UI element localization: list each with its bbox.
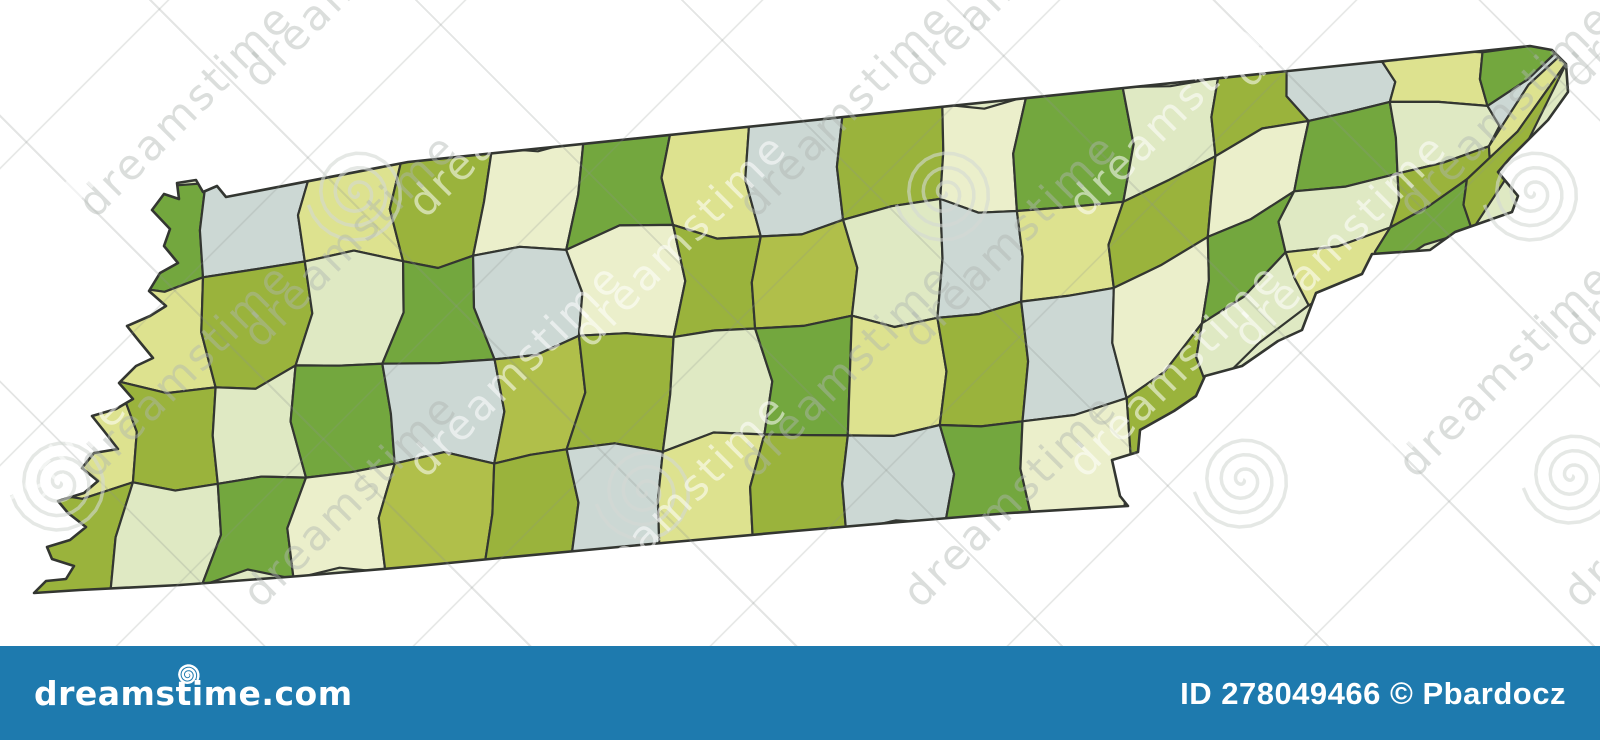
county-shape: [745, 110, 843, 237]
credit-text: ID 278049466 © Pbardocz: [1180, 678, 1566, 709]
county-shape: [937, 302, 1028, 427]
stock-image-canvas: dreamstimedreamstimedreamstimedreamstime…: [0, 0, 1600, 740]
county-shape: [291, 364, 395, 478]
logo-spiral-icon: [175, 662, 201, 688]
footer-bar: dreamstime.com ID 278049466 © Pbardocz: [0, 646, 1600, 740]
county-shape: [755, 316, 852, 436]
county-shape: [842, 425, 954, 532]
county-shape: [937, 199, 1022, 318]
county-shape: [1021, 288, 1126, 421]
county-shape: [32, 192, 130, 288]
county-shape: [382, 359, 504, 463]
county-shape: [752, 220, 858, 329]
county-shape: [485, 449, 579, 564]
county-shape: [379, 452, 495, 572]
county-shape: [296, 251, 404, 366]
county-shape: [1017, 202, 1123, 302]
county-layer: [31, 41, 1569, 599]
county-shape: [32, 275, 126, 405]
county-shape: [843, 199, 942, 327]
dreamstime-logo: dreamstime.com: [34, 677, 353, 710]
county-shape: [848, 316, 947, 436]
county-shape: [567, 443, 663, 560]
county-shape: [566, 225, 685, 337]
county-shape: [673, 225, 761, 337]
county-shape: [1013, 87, 1133, 211]
county-shape: [298, 156, 403, 262]
county-shape: [940, 421, 1032, 523]
county-shape: [32, 381, 137, 499]
tennessee-county-map: [0, 0, 1600, 646]
